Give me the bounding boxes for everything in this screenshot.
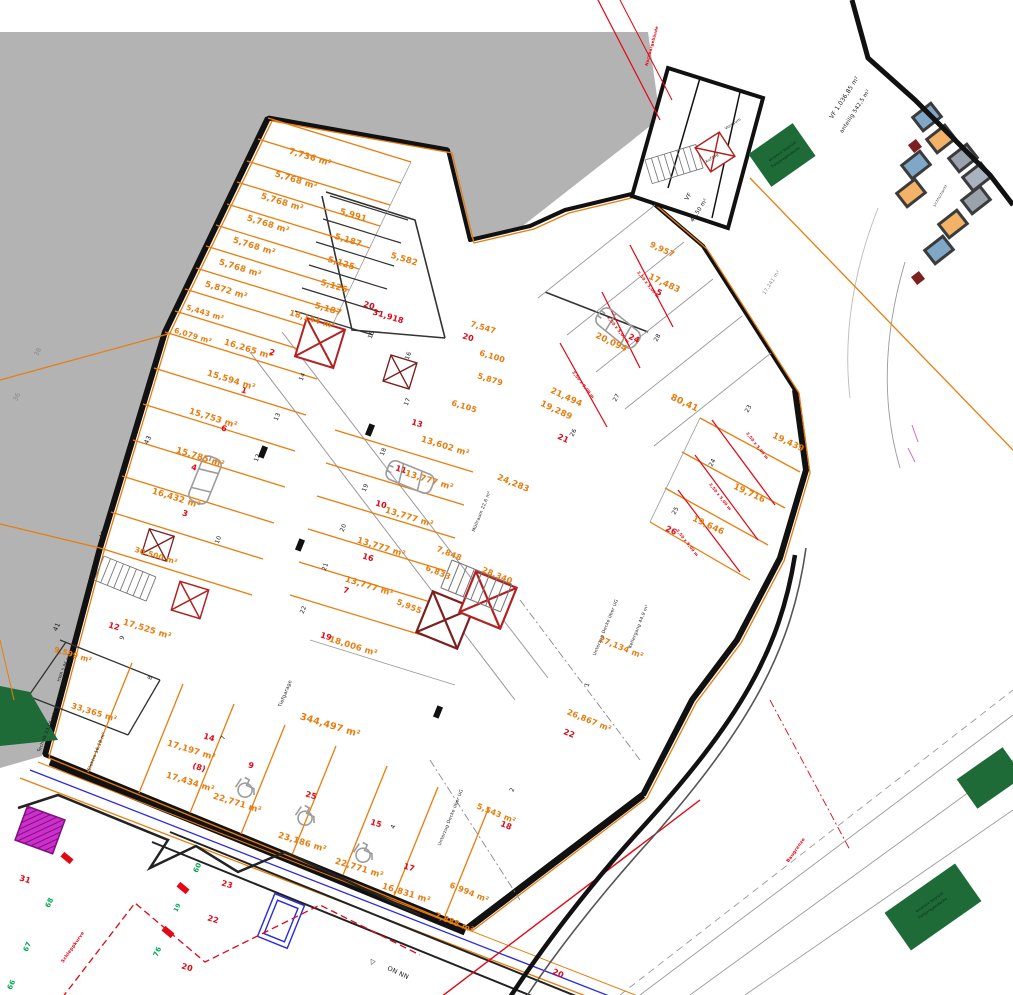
top-right-road-wall bbox=[852, 0, 1013, 205]
floorplan-canvas: { "document": { "type": "floor-plan", "n… bbox=[0, 0, 1013, 995]
magenta-hatch-element bbox=[15, 806, 65, 854]
plan-drawing bbox=[0, 0, 1013, 995]
site-pink-marks bbox=[908, 425, 918, 462]
